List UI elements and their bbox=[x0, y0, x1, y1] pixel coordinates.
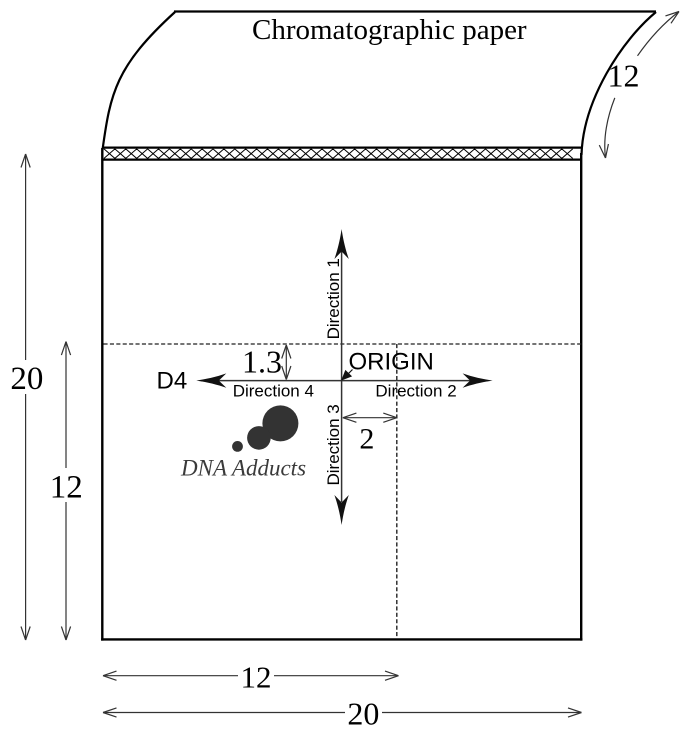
svg-text:Chromatographic paper: Chromatographic paper bbox=[252, 14, 527, 46]
svg-text:Direction 3: Direction 3 bbox=[324, 404, 343, 485]
svg-text:1.3: 1.3 bbox=[242, 344, 282, 380]
svg-text:ORIGIN: ORIGIN bbox=[349, 349, 434, 376]
svg-text:2: 2 bbox=[359, 423, 374, 456]
svg-text:20: 20 bbox=[10, 361, 43, 397]
svg-text:D4: D4 bbox=[157, 367, 188, 394]
svg-text:12: 12 bbox=[241, 660, 272, 695]
svg-text:12: 12 bbox=[608, 58, 640, 94]
svg-text:20: 20 bbox=[347, 696, 379, 732]
svg-text:12: 12 bbox=[50, 469, 83, 505]
svg-text:Direction 2: Direction 2 bbox=[375, 382, 456, 401]
svg-text:Direction 1: Direction 1 bbox=[324, 258, 343, 339]
svg-text:DNA Adducts: DNA Adducts bbox=[180, 455, 306, 480]
svg-text:Direction 4: Direction 4 bbox=[233, 382, 314, 401]
